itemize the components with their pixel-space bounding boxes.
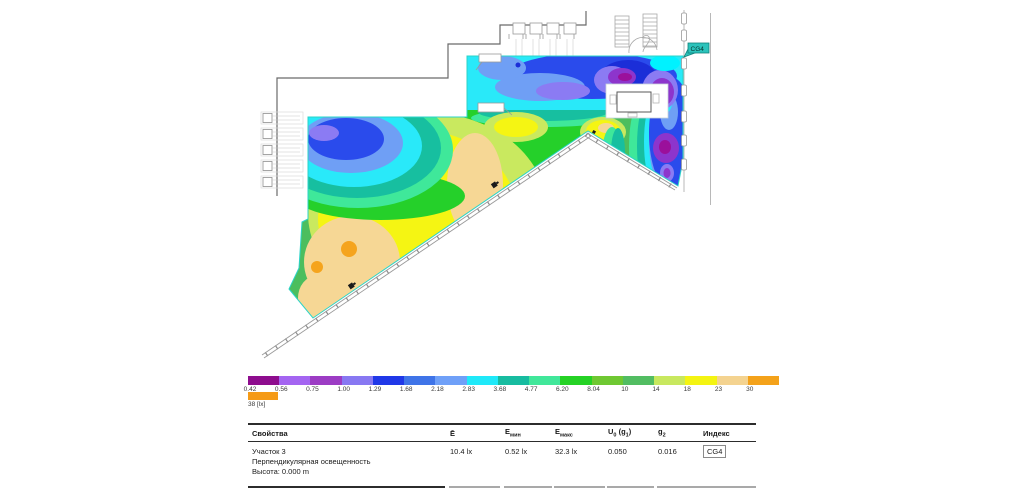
surface-metric: Перпендикулярная освещенность: [252, 457, 371, 467]
legend-segment-label: 1.29: [363, 386, 387, 393]
header-e-max: Eмакс: [555, 427, 573, 439]
surface-description: Участок 3 Перпендикулярная освещенность …: [252, 447, 371, 477]
legend-segment-label: 14: [644, 386, 668, 393]
desk-inset: [606, 84, 668, 118]
table-bottom-rule: [700, 486, 756, 488]
legend-segment-label: 1.00: [332, 386, 356, 393]
surface-tag[interactable]: CG4: [684, 43, 709, 57]
table-bottom-rule: [449, 486, 500, 488]
header-g2: g2: [658, 427, 666, 439]
legend-segment: 1.68: [404, 376, 435, 385]
top-furniture: [509, 23, 576, 56]
surface-height: Высота: 0.000 m: [252, 467, 371, 477]
legend-segment: 23: [717, 376, 748, 385]
value-e-max: 32.3 lx: [555, 447, 577, 456]
surface-name: Участок 3: [252, 447, 371, 457]
table-bottom-rule-dark: [248, 486, 445, 488]
legend-segment-label: 18: [675, 386, 699, 393]
table-bottom-rule: [504, 486, 552, 488]
properties-table: Свойства Ē Eмин Eмакс U0 (g1) g2 Индекс …: [248, 423, 756, 488]
legend-segment-label: 1.68: [394, 386, 418, 393]
legend-segment: 0.56: [279, 376, 310, 385]
report-page: CG4 0.42 0.56 0.75 1.00: [0, 0, 1024, 500]
legend-segment: 30: [748, 376, 779, 385]
index-badge: CG4: [703, 445, 726, 458]
table-bottom-rule: [554, 486, 605, 488]
legend-segment: 4.77: [529, 376, 560, 385]
legend-segment-label: 3.68: [488, 386, 512, 393]
legend-segment-label: 0.75: [300, 386, 324, 393]
legend-segment-label: 10: [613, 386, 637, 393]
legend-scale-bar: 0.42 0.56 0.75 1.00 1.29: [248, 376, 779, 385]
legend-segment: 0.42: [248, 376, 279, 385]
legend: 0.42 0.56 0.75 1.00 1.29: [248, 376, 779, 385]
legend-overflow-swatch: [248, 392, 278, 400]
value-e-min: 0.52 lx: [505, 447, 527, 456]
legend-segment: 6.20: [560, 376, 591, 385]
legend-segment: 1.00: [342, 376, 373, 385]
legend-segment-label: 8.04: [582, 386, 606, 393]
value-index: CG4: [703, 445, 726, 458]
legend-segment: 2.83: [467, 376, 498, 385]
legend-segment: 3.68: [498, 376, 529, 385]
header-e-avg: Ē: [450, 429, 455, 438]
value-e-avg: 10.4 lx: [450, 447, 472, 456]
legend-segment-label: 2.83: [457, 386, 481, 393]
surface-tag-label: CG4: [691, 46, 705, 53]
table-body-row: Участок 3 Перпендикулярная освещенность …: [248, 442, 756, 486]
stairs: [615, 14, 657, 53]
table-bottom-rule: [607, 486, 654, 488]
legend-segment-label: 6.20: [550, 386, 574, 393]
header-u0: U0 (g1): [608, 427, 631, 439]
value-g2: 0.016: [658, 447, 677, 456]
legend-segment: 0.75: [310, 376, 341, 385]
legend-segment: 8.04: [592, 376, 623, 385]
legend-segment-label: 30: [738, 386, 762, 393]
legend-overflow-label: 38 [lx]: [248, 401, 265, 408]
table-bottom-rule: [657, 486, 700, 488]
value-u0: 0.050: [608, 447, 627, 456]
legend-segment: 2.18: [435, 376, 466, 385]
legend-segment: 10: [623, 376, 654, 385]
header-index: Индекс: [703, 429, 730, 438]
header-properties: Свойства: [252, 429, 288, 438]
legend-segment: 18: [685, 376, 716, 385]
legend-segment: 1.29: [373, 376, 404, 385]
legend-segment-label: 23: [707, 386, 731, 393]
left-furniture: [261, 112, 303, 188]
table-header-row: Свойства Ē Eмин Eмакс U0 (g1) g2 Индекс: [248, 425, 756, 442]
header-e-min: Eмин: [505, 427, 521, 439]
legend-segment-label: 4.77: [519, 386, 543, 393]
legend-segment: 14: [654, 376, 685, 385]
legend-segment-label: 2.18: [425, 386, 449, 393]
